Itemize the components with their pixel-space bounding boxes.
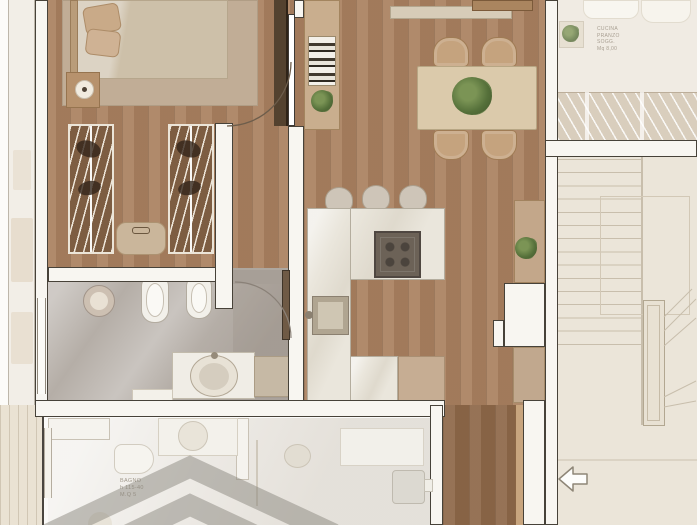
faded-furniture-shadow [11,312,33,364]
exterior-wall-right [545,0,558,525]
bathroom-top-wall [48,267,216,282]
stairwell-top-wall [545,140,697,157]
pillow [85,28,122,58]
faded-furniture-shadow [13,150,31,190]
bedroom-door-leaf [288,14,295,126]
wall-step-right [493,320,504,347]
oval-washbasin-bowl [199,363,229,390]
kitchen-faucet [305,311,313,319]
dining-chair [433,37,469,67]
faded-shower-screen [256,440,258,506]
dining-chair [481,37,517,67]
dining-chair [481,130,517,160]
label-line: BAGNO [120,478,180,485]
lower-bathroom-label: BAGNO h 115-40 M.Q 5 [120,478,180,499]
bathroom-faucet [211,352,218,359]
kitchen-cabinet [398,356,445,403]
wardrobe-right [168,124,214,254]
plant-icon [515,237,537,259]
faded-washbasin [178,421,208,451]
adjacent-unit-wardrobe [558,92,697,140]
bench-pouf [116,222,166,255]
stair-landing-outline [600,196,690,315]
faded-shower-tray [392,470,425,504]
hallway-right-wall [523,400,545,525]
bedroom-partition-wall [215,123,233,309]
bathroom-cabinet [254,356,291,397]
wardrobe-left [68,124,114,254]
faded-bed-shape [583,0,639,19]
landing-separator [558,459,697,461]
faded-bed-shape [641,0,691,23]
window-lower-left [44,428,52,498]
faded-fixture-round [284,444,311,468]
lamp-icon [75,80,94,99]
faded-furniture-shadow [11,218,33,282]
faded-counter [340,428,424,466]
book-stack [308,36,336,86]
floor-plan-canvas: BAGNO h 115-40 M.Q 5 CUCINA PRANZO SOGG.… [0,0,700,525]
bathroom-sliding-door [282,270,290,340]
label-line: Mq 8,00 [597,46,649,53]
faded-fixture-tab [424,479,433,492]
hallway-left-wall [430,405,443,525]
lower-unit-wall-step [48,418,110,440]
kitchen-partition-wall [288,126,304,405]
window-left [37,298,46,394]
plant-icon [311,90,333,112]
plant-icon [562,25,579,42]
cooktop [374,231,421,278]
kitchen-sink-basin [318,302,343,329]
wall-cabinet [472,0,533,11]
bidet [186,276,212,319]
hallway-open-door-leaf [515,405,523,525]
label-line: M.Q 5 [120,492,180,499]
wardrobe-divider [640,92,644,140]
stair-core-inner [647,305,660,421]
plant-icon [452,77,492,115]
wall-block-right [504,283,545,347]
label-line: h 115-40 [120,485,180,492]
unit-dividing-wall [35,400,445,417]
tv-panel [274,0,288,126]
wardrobe-divider [585,92,589,140]
bed-headboard [70,0,78,79]
top-wall-stub [294,0,304,18]
terrace-tile-floor [0,405,44,525]
faded-toilet [114,444,154,474]
kitchen-counter-bottom [350,356,398,403]
adjacent-room-label: CUCINA PRANZO SOGG. Mq 8,00 [597,26,649,52]
round-washbasin-bowl [90,292,108,310]
wall-cabinet-strip [513,347,545,403]
toilet [141,276,169,323]
hallway-wood-floor [443,405,515,525]
dining-chair [433,130,469,160]
